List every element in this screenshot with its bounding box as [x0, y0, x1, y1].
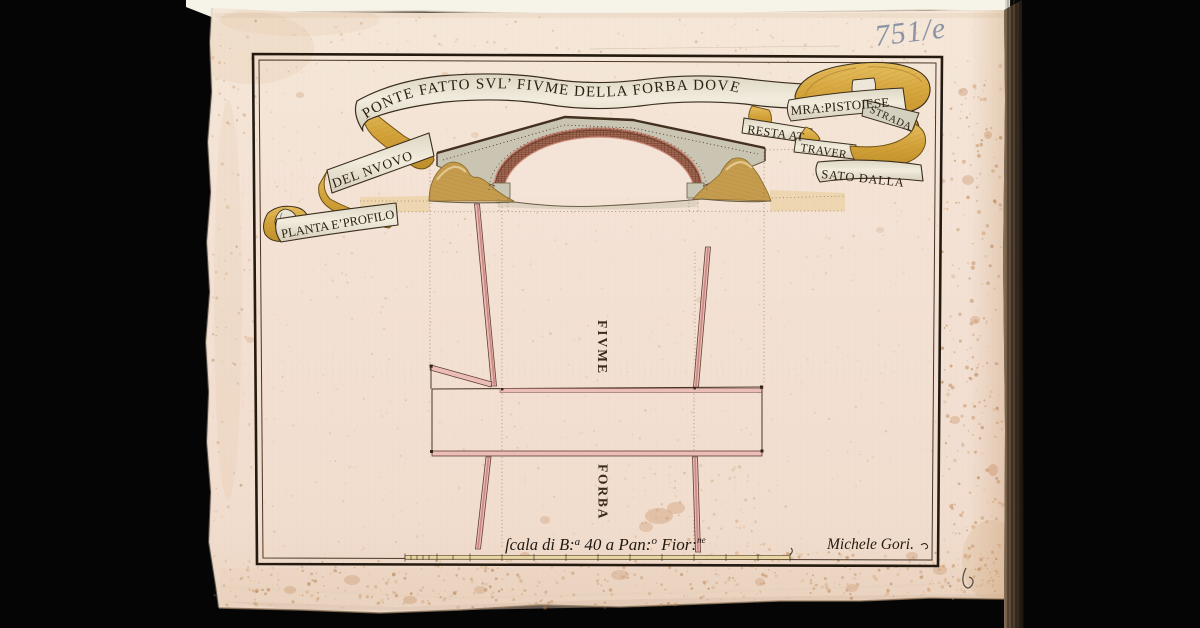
svg-text:ſcala di B:a 40 a Pan:o Fior:n: ſcala di B:a 40 a Pan:o Fior:ne [505, 535, 706, 554]
svg-text:Michele Gori.: Michele Gori. [826, 536, 914, 553]
svg-text:FORBA: FORBA [596, 464, 611, 520]
svg-text:FIVME: FIVME [595, 320, 610, 375]
